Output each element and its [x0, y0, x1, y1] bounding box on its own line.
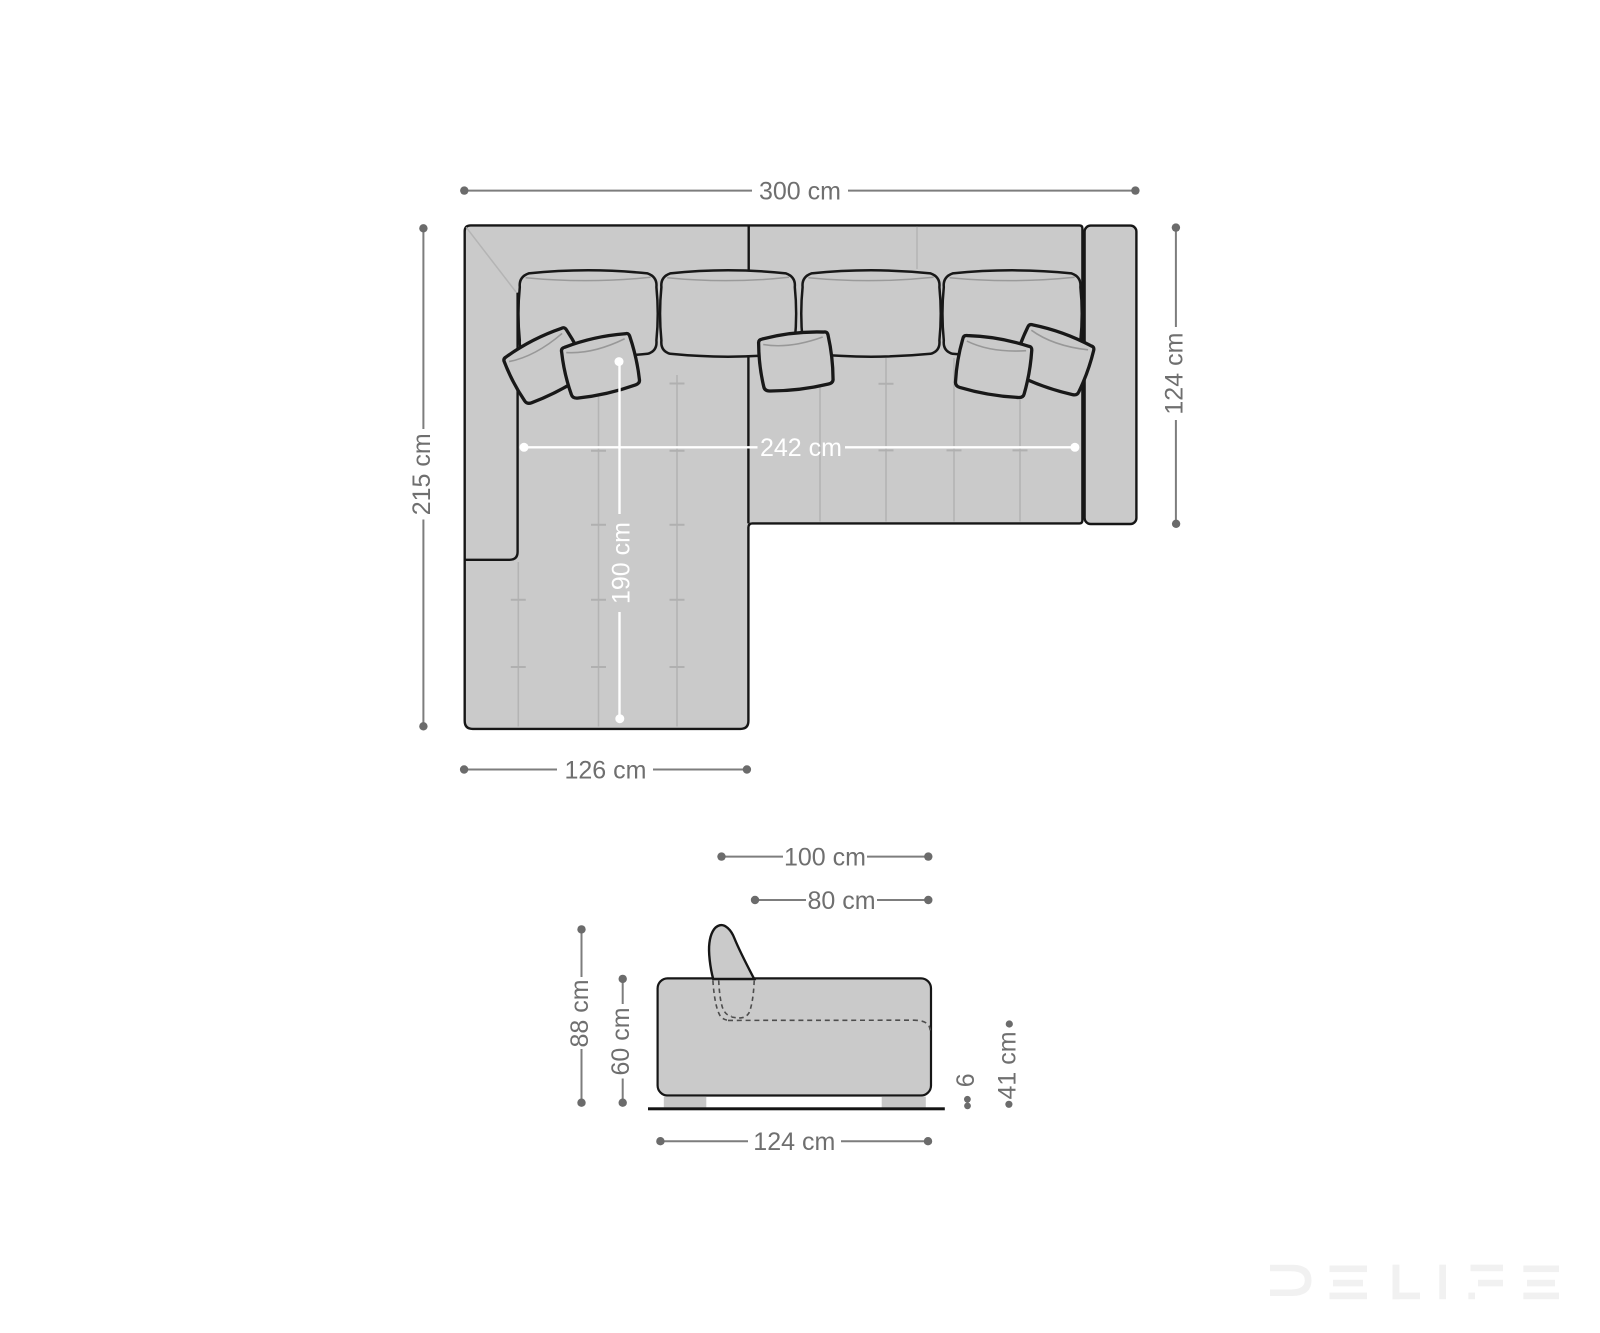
- svg-text:6: 6: [952, 1073, 980, 1087]
- svg-text:100 cm: 100 cm: [784, 844, 866, 872]
- svg-text:88 cm: 88 cm: [566, 979, 594, 1047]
- svg-text:126 cm: 126 cm: [565, 757, 647, 785]
- svg-text:242 cm: 242 cm: [760, 434, 842, 462]
- svg-text:124 cm: 124 cm: [1160, 333, 1188, 415]
- svg-text:215 cm: 215 cm: [408, 433, 436, 515]
- svg-text:41 cm: 41 cm: [994, 1031, 1022, 1099]
- svg-text:300 cm: 300 cm: [759, 177, 841, 205]
- svg-text:124 cm: 124 cm: [753, 1128, 835, 1156]
- svg-text:190 cm: 190 cm: [608, 522, 636, 604]
- svg-text:60 cm: 60 cm: [607, 1007, 635, 1075]
- svg-text:80 cm: 80 cm: [807, 887, 875, 915]
